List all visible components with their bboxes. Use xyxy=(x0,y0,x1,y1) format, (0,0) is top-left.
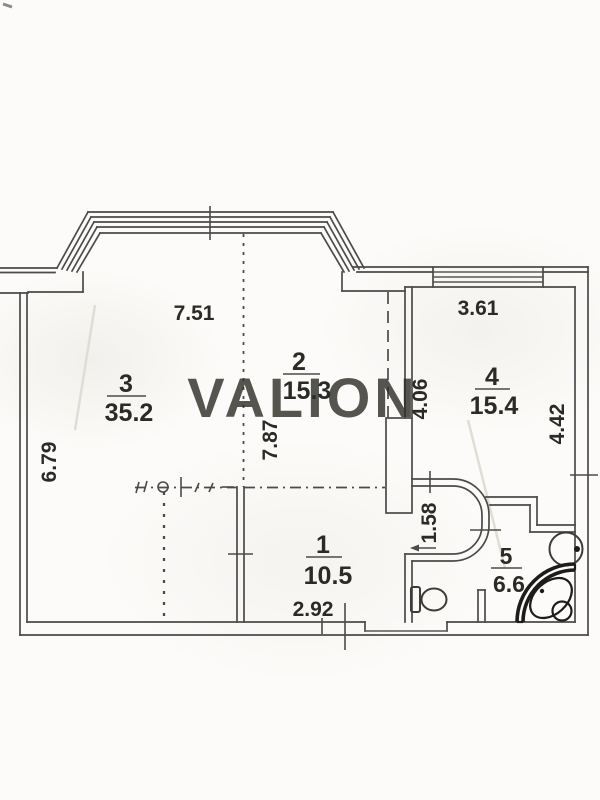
room-3-number: 3 xyxy=(119,370,133,398)
room-1-label: 1 10.5 xyxy=(304,531,353,590)
dim-room4-height-right: 4.42 xyxy=(546,404,569,445)
dim-width-top: 7.51 xyxy=(174,302,215,325)
bathtub-icon xyxy=(517,564,580,626)
room-2-area: 15.3 xyxy=(283,377,332,405)
dim-bottom-width: 2.92 xyxy=(293,598,334,621)
room-5-area: 6.6 xyxy=(493,571,525,597)
pillar xyxy=(386,418,412,513)
dim-room4-width: 3.61 xyxy=(458,297,499,320)
bathroom-door-stub xyxy=(478,590,485,622)
entrance-door xyxy=(365,622,447,631)
room-1-area: 10.5 xyxy=(304,562,353,590)
dim-hall-width: 1.58 xyxy=(418,502,441,543)
bay-window xyxy=(57,206,364,272)
toilet-icon xyxy=(411,587,447,612)
room-4-number: 4 xyxy=(485,363,499,391)
room-1-number: 1 xyxy=(316,531,330,559)
dim-left-height: 6.79 xyxy=(38,442,61,483)
window-room4 xyxy=(433,267,543,287)
bathroom-wall xyxy=(486,475,598,532)
room-4-label: 4 15.4 xyxy=(470,363,519,420)
room-4-area: 15.4 xyxy=(470,392,519,420)
room-5-label: 5 6.6 xyxy=(491,543,525,597)
room-3-area: 35.2 xyxy=(105,399,154,427)
room-2-number: 2 xyxy=(292,348,306,376)
room-3-label: 3 35.2 xyxy=(105,370,154,427)
floor-plan-drawing: VALION 3 35.2 2 15.3 4 15.4 1 10.5 5 6.6 xyxy=(0,0,600,800)
washbasin-icon xyxy=(550,533,583,566)
room-2-label: 2 15.3 xyxy=(283,348,332,405)
floor-plan-scan: VALION 3 35.2 2 15.3 4 15.4 1 10.5 5 6.6 xyxy=(0,0,600,800)
dim-mid-height: 7.87 xyxy=(259,420,282,461)
dimension-arrow xyxy=(410,545,436,552)
room-5-number: 5 xyxy=(500,543,513,569)
dim-room4-height-left: 4.06 xyxy=(409,379,432,420)
